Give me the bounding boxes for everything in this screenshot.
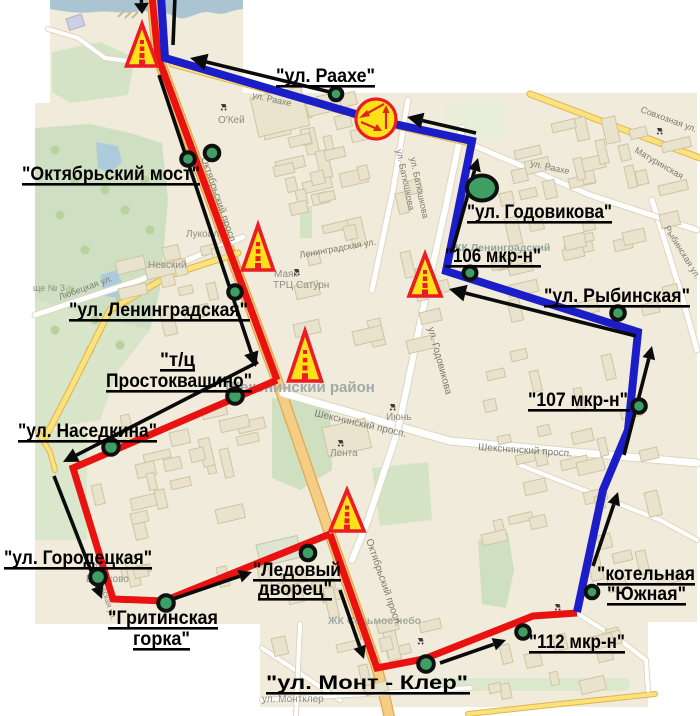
svg-text:ЖК Седьмое небо: ЖК Седьмое небо [327, 615, 421, 627]
svg-text:"ул. Ленинградская": "ул. Ленинградская" [69, 300, 248, 321]
svg-text:"Ледовый: "Ледовый [253, 560, 341, 581]
svg-text:Невский: Невский [148, 260, 187, 271]
svg-text:Июнь: Июнь [386, 412, 411, 423]
svg-text:"Октябрьский мост": "Октябрьский мост" [22, 164, 200, 185]
svg-text:дворец": дворец" [258, 579, 332, 600]
svg-text:"112 мкр-н": "112 мкр-н" [529, 632, 625, 653]
svg-text:Простоквашино": Простоквашино" [106, 371, 252, 392]
svg-text:ТРЦ Сатурн: ТРЦ Сатурн [273, 280, 329, 291]
svg-text:"ул. Городецкая": "ул. Городецкая" [4, 548, 152, 569]
svg-text:"106 мкр-н": "106 мкр-н" [445, 246, 541, 267]
svg-text:"Гритинская: "Гритинская [108, 608, 218, 629]
svg-text:горка": горка" [133, 629, 190, 650]
svg-text:"ул. Годовикова": "ул. Годовикова" [467, 202, 612, 223]
svg-text:"107 мкр-н": "107 мкр-н" [528, 390, 628, 411]
svg-text:"ул. Наседкина": "ул. Наседкина" [18, 421, 157, 442]
svg-text:"ул. Рыбинская": "ул. Рыбинская" [544, 286, 690, 307]
svg-text:"котельная: "котельная [597, 564, 695, 585]
svg-text:ул. Монтклер: ул. Монтклер [262, 694, 324, 705]
svg-text:Лента: Лента [330, 448, 358, 459]
svg-text:"ул. Раахе": "ул. Раахе" [276, 66, 375, 87]
svg-text:"т/ц: "т/ц [160, 350, 195, 371]
svg-text:"Южная": "Южная" [607, 584, 686, 605]
svg-text:"ул. Монт - Клер": "ул. Монт - Клер" [266, 673, 468, 694]
svg-text:О'Кей: О'Кей [218, 115, 245, 126]
